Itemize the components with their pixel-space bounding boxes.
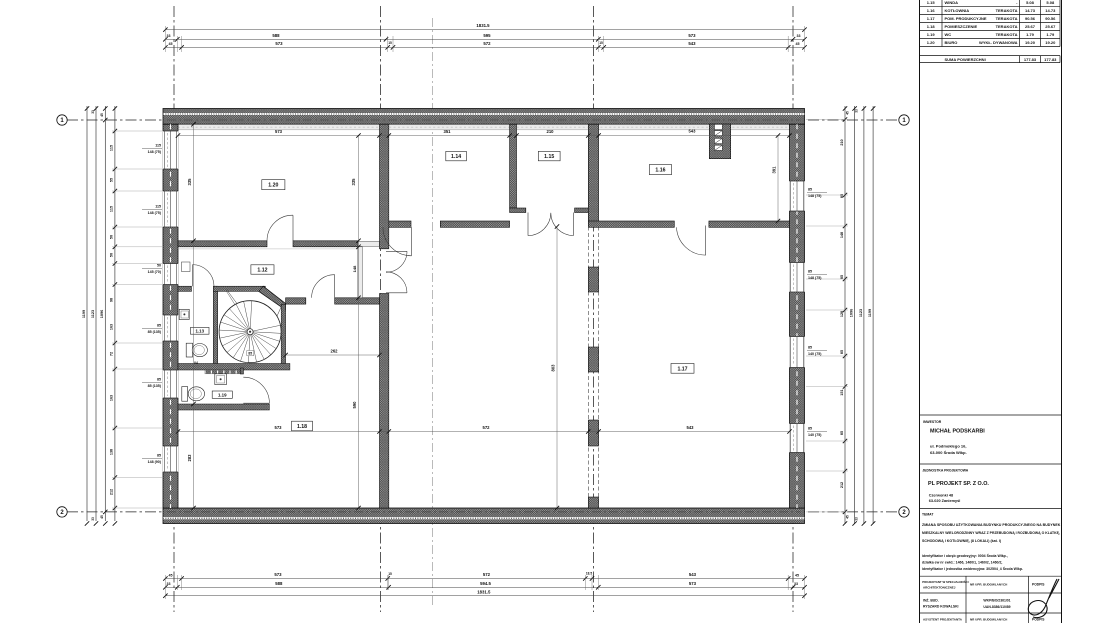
svg-text:115: 115 [110, 206, 114, 212]
svg-text:50: 50 [110, 253, 114, 257]
svg-text:573: 573 [275, 41, 283, 46]
svg-text:1.15: 1.15 [927, 0, 936, 5]
svg-text:15: 15 [388, 41, 392, 45]
svg-text:572: 572 [483, 425, 491, 430]
svg-text:151: 151 [840, 389, 844, 395]
svg-text:WINDA: WINDA [945, 0, 959, 5]
svg-text:138: 138 [110, 449, 114, 455]
svg-text:588: 588 [275, 581, 283, 586]
svg-text:1.20: 1.20 [268, 183, 278, 189]
svg-text:1199: 1199 [82, 310, 86, 318]
svg-text:33: 33 [797, 34, 801, 38]
svg-text:90.56: 90.56 [1025, 16, 1036, 21]
svg-text:115: 115 [110, 145, 114, 151]
svg-text:85: 85 [840, 275, 844, 279]
svg-text:PODPIS: PODPIS [1032, 618, 1045, 622]
svg-text:85: 85 [157, 454, 161, 458]
svg-text:NR UPR. BUDOWLANYCH: NR UPR. BUDOWLANYCH [970, 618, 1007, 622]
svg-text:63-000 Środa Wlkp.: 63-000 Środa Wlkp. [930, 450, 967, 455]
svg-text:Czerwonki 48: Czerwonki 48 [929, 494, 953, 498]
svg-text:45: 45 [169, 573, 173, 577]
svg-text:50: 50 [157, 264, 161, 268]
svg-text:1.17: 1.17 [677, 366, 687, 372]
svg-text:19.20: 19.20 [1025, 40, 1036, 45]
svg-text:MIESZKALNY WIELORODZINNY WRAZ: MIESZKALNY WIELORODZINNY WRAZ Z PRZEBUDO… [922, 531, 1060, 535]
svg-text:177.83: 177.83 [1024, 57, 1037, 62]
svg-text:572: 572 [483, 41, 491, 46]
svg-text:148 (75): 148 (75) [808, 194, 822, 198]
svg-text:1.18: 1.18 [927, 24, 936, 29]
svg-text:RYSZARD KOWALSKI: RYSZARD KOWALSKI [923, 605, 959, 609]
svg-text:1831.5: 1831.5 [477, 590, 491, 595]
svg-text:85: 85 [808, 270, 812, 274]
svg-text:573: 573 [688, 33, 696, 38]
svg-text:identyfikator i jednostka ewid: identyfikator i jednostka ewidencyjna: 3… [922, 566, 1023, 571]
svg-text:1.16: 1.16 [927, 8, 936, 13]
svg-text:1.13: 1.13 [195, 329, 204, 334]
svg-text:85: 85 [840, 350, 844, 354]
svg-text:33: 33 [167, 34, 171, 38]
svg-text:KOTŁOWNIA: KOTŁOWNIA [945, 8, 970, 13]
svg-text:85: 85 [157, 378, 161, 382]
svg-text:JEDNOSTKA PROJEKTOWA: JEDNOSTKA PROJEKTOWA [922, 469, 968, 473]
svg-text:SCHODOWĄ I KOTŁOWNIĘ, (8 LOKAL: SCHODOWĄ I KOTŁOWNIĘ, (8 LOKALI) (kat. I… [922, 539, 1002, 543]
svg-text:115: 115 [155, 144, 161, 148]
svg-text:33: 33 [167, 582, 171, 586]
svg-text:33: 33 [91, 517, 95, 521]
svg-text:85: 85 [808, 346, 812, 350]
svg-text:210: 210 [547, 129, 555, 134]
svg-text:1.20: 1.20 [927, 40, 936, 45]
svg-text:UAN-8386/110/89: UAN-8386/110/89 [983, 605, 1010, 609]
svg-text:SUMA POWIERZCHNI: SUMA POWIERZCHNI [945, 57, 986, 62]
svg-text:594.5: 594.5 [480, 581, 491, 586]
svg-text:148 (75): 148 (75) [808, 276, 822, 280]
svg-text:33: 33 [855, 517, 859, 521]
svg-text:identyfikator i obręb geodezyj: identyfikator i obręb geodezyjny: 0004 Ś… [922, 553, 1008, 558]
svg-text:572: 572 [483, 572, 491, 577]
svg-text:33: 33 [855, 109, 859, 113]
svg-text:1199: 1199 [868, 309, 872, 317]
svg-text:140 (75): 140 (75) [808, 352, 822, 356]
svg-text:18.5: 18.5 [586, 571, 592, 575]
svg-text:177.83: 177.83 [1044, 57, 1057, 62]
svg-text:TERAKOTA: TERAKOTA [996, 24, 1018, 29]
svg-text:5.08: 5.08 [1046, 0, 1055, 5]
svg-text:25.67: 25.67 [1045, 24, 1056, 29]
svg-text:1096: 1096 [100, 310, 104, 318]
svg-text:163: 163 [110, 395, 114, 401]
svg-text:283: 283 [187, 454, 192, 462]
svg-text:1.15: 1.15 [544, 154, 554, 160]
svg-text:ZMIANA SPOSOBU UŻYTKOWANIA BUD: ZMIANA SPOSOBU UŻYTKOWANIA BUDYNKU PRODU… [922, 523, 1061, 527]
svg-text:MICHAŁ PODSKARBI: MICHAŁ PODSKARBI [930, 429, 985, 435]
svg-text:1.12: 1.12 [257, 267, 267, 273]
svg-text:TERAKOTA: TERAKOTA [996, 16, 1018, 21]
svg-text:85: 85 [840, 194, 844, 198]
svg-text:04: 04 [194, 361, 198, 365]
svg-text:INWESTOR: INWESTOR [923, 420, 942, 424]
svg-text:148: 148 [352, 265, 357, 272]
svg-text:63-020 Zaniemyśl: 63-020 Zaniemyśl [929, 499, 960, 503]
svg-text:1.14: 1.14 [451, 154, 461, 160]
svg-text:140 (75): 140 (75) [808, 433, 822, 437]
svg-text:TERAKOTA: TERAKOTA [996, 32, 1018, 37]
svg-text:PL PROJEKT SP. Z O.O.: PL PROJEKT SP. Z O.O. [928, 481, 989, 487]
svg-text:25.67: 25.67 [1025, 24, 1036, 29]
svg-text:1123: 1123 [859, 309, 863, 317]
svg-text:148: 148 [840, 232, 844, 238]
svg-text:573: 573 [689, 581, 697, 586]
svg-text:WYKŁ. DYWANOWA: WYKŁ. DYWANOWA [979, 40, 1018, 45]
svg-text:45: 45 [100, 113, 104, 117]
svg-text:45: 45 [169, 42, 173, 46]
svg-text:15: 15 [599, 41, 603, 45]
svg-text:50: 50 [110, 235, 114, 239]
svg-text:45: 45 [795, 573, 799, 577]
svg-text:85: 85 [157, 324, 161, 328]
svg-text:1.18: 1.18 [297, 424, 307, 430]
svg-text:33: 33 [91, 110, 95, 114]
svg-text:145 (70): 145 (70) [148, 270, 162, 274]
svg-text:85: 85 [248, 352, 252, 356]
svg-text:590: 590 [352, 401, 357, 409]
svg-text:543: 543 [689, 129, 697, 134]
svg-text:1.17: 1.17 [927, 16, 936, 21]
svg-text:WKP/BO/2361/01: WKP/BO/2361/01 [983, 599, 1010, 603]
svg-text:45: 45 [846, 515, 850, 519]
svg-text:595: 595 [483, 33, 491, 38]
svg-text:BIURO: BIURO [945, 40, 958, 45]
svg-text:14.73: 14.73 [1025, 8, 1036, 13]
svg-text:391: 391 [772, 166, 777, 174]
svg-text:1096: 1096 [850, 309, 854, 317]
svg-text:1831.5: 1831.5 [476, 23, 490, 28]
svg-text:128: 128 [840, 311, 844, 317]
svg-text:WC: WC [945, 32, 952, 37]
svg-text:NR UPR. BUDOWLANYCH: NR UPR. BUDOWLANYCH [970, 583, 1007, 587]
svg-text:803: 803 [551, 364, 556, 372]
svg-text:POM. PRODUKCYJNE: POM. PRODUKCYJNE [945, 16, 987, 21]
svg-text:1.79: 1.79 [1046, 32, 1055, 37]
svg-text:573: 573 [275, 425, 283, 430]
svg-text:163: 163 [110, 324, 114, 330]
svg-text:45: 45 [100, 515, 104, 519]
svg-text:19.20: 19.20 [1045, 40, 1056, 45]
svg-text:TEMAT: TEMAT [922, 513, 934, 517]
svg-text:573: 573 [275, 129, 283, 134]
svg-text:1123: 1123 [91, 310, 95, 318]
svg-text:543: 543 [689, 572, 697, 577]
svg-text:543: 543 [688, 41, 696, 46]
svg-text:1.79: 1.79 [1026, 32, 1035, 37]
svg-text:212: 212 [840, 482, 844, 488]
svg-text:działka ew nr ewid.: 1466, 146: działka ew nr ewid.: 1466, 1460/1, 1460/… [922, 561, 1002, 565]
svg-text:588: 588 [272, 33, 280, 38]
svg-text:335: 335 [351, 178, 356, 186]
svg-text:PROJEKTANT W SPECJALNOŚCI: PROJEKTANT W SPECJALNOŚCI [922, 579, 968, 584]
svg-text:90.56: 90.56 [1045, 16, 1056, 21]
svg-text:573: 573 [274, 572, 282, 577]
svg-text:PODPIS: PODPIS [1032, 583, 1045, 587]
svg-text:45: 45 [846, 111, 850, 115]
svg-text:INŻ. BUD.: INŻ. BUD. [923, 599, 939, 603]
svg-text:POMIESZCZENIE: POMIESZCZENIE [945, 24, 978, 29]
svg-text:1.16: 1.16 [655, 168, 665, 174]
svg-text:543: 543 [687, 425, 695, 430]
svg-text:ARCHITEKTONICZNEJ: ARCHITEKTONICZNEJ [923, 586, 956, 590]
svg-text:262: 262 [331, 349, 339, 354]
svg-text:ASYSTENT PROJEKTANTA: ASYSTENT PROJEKTANTA [923, 618, 963, 622]
svg-text:85: 85 [840, 431, 844, 435]
svg-text:14.73: 14.73 [1045, 8, 1056, 13]
svg-text:351: 351 [444, 129, 452, 134]
svg-text:5.08: 5.08 [1026, 0, 1035, 5]
svg-text:1.19: 1.19 [218, 393, 227, 398]
svg-text:148 (90): 148 (90) [148, 460, 162, 464]
svg-text:335: 335 [187, 178, 192, 186]
svg-text:85: 85 [808, 188, 812, 192]
svg-text:85: 85 [808, 427, 812, 431]
svg-text:55: 55 [110, 178, 114, 182]
svg-text:85 (135): 85 (135) [148, 384, 162, 388]
svg-text:1.19: 1.19 [927, 32, 936, 37]
svg-text:148 (75): 148 (75) [148, 150, 162, 154]
svg-text:212: 212 [110, 489, 114, 495]
svg-text:45: 45 [796, 42, 800, 46]
svg-text:115: 115 [155, 205, 161, 209]
svg-text:148 (75): 148 (75) [148, 211, 162, 215]
svg-text:98: 98 [110, 298, 114, 302]
svg-text:85 (135): 85 (135) [148, 330, 162, 334]
svg-text:33: 33 [794, 582, 798, 586]
svg-text:72: 72 [110, 352, 114, 356]
svg-text:ul. Podmokłego 16,: ul. Podmokłego 16, [930, 444, 966, 449]
svg-text:210: 210 [840, 139, 844, 145]
svg-text:TERAKOTA: TERAKOTA [996, 8, 1018, 13]
